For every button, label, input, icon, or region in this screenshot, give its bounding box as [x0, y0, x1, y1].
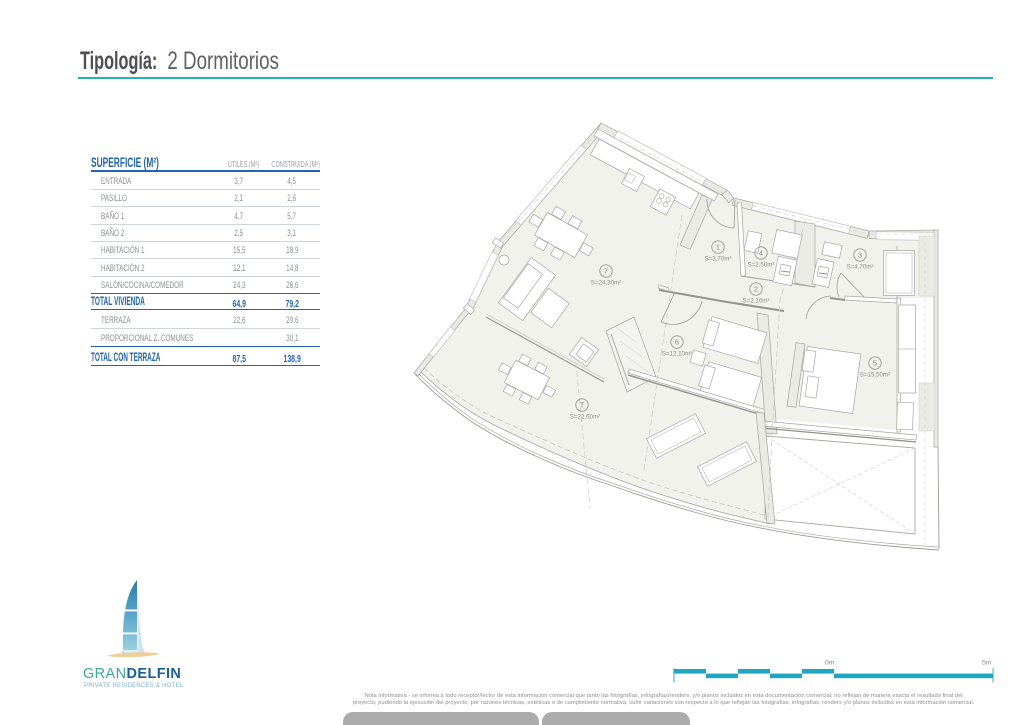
svg-text:S=2,10m²: S=2,10m²	[743, 298, 770, 305]
svg-text:S=24,30m²: S=24,30m²	[591, 280, 621, 287]
svg-text:S=12,10m²: S=12,10m²	[662, 351, 692, 358]
svg-text:S=4,70m²: S=4,70m²	[847, 264, 874, 271]
svg-text:1: 1	[716, 243, 720, 252]
svg-text:5m: 5m	[982, 660, 992, 667]
svg-text:7: 7	[604, 267, 608, 276]
svg-text:3: 3	[858, 251, 862, 260]
svg-text:S=3,70m²: S=3,70m²	[705, 256, 732, 263]
svg-text:T: T	[580, 401, 585, 410]
svg-text:S=22,60m²: S=22,60m²	[570, 414, 600, 421]
svg-text:S=2,50m²: S=2,50m²	[748, 262, 775, 269]
svg-text:S=15,50m²: S=15,50m²	[860, 372, 890, 379]
svg-text:4: 4	[759, 249, 763, 258]
svg-text:2: 2	[754, 285, 758, 294]
svg-text:0m: 0m	[825, 660, 835, 667]
svg-text:5: 5	[873, 359, 877, 368]
svg-text:6: 6	[675, 338, 679, 347]
